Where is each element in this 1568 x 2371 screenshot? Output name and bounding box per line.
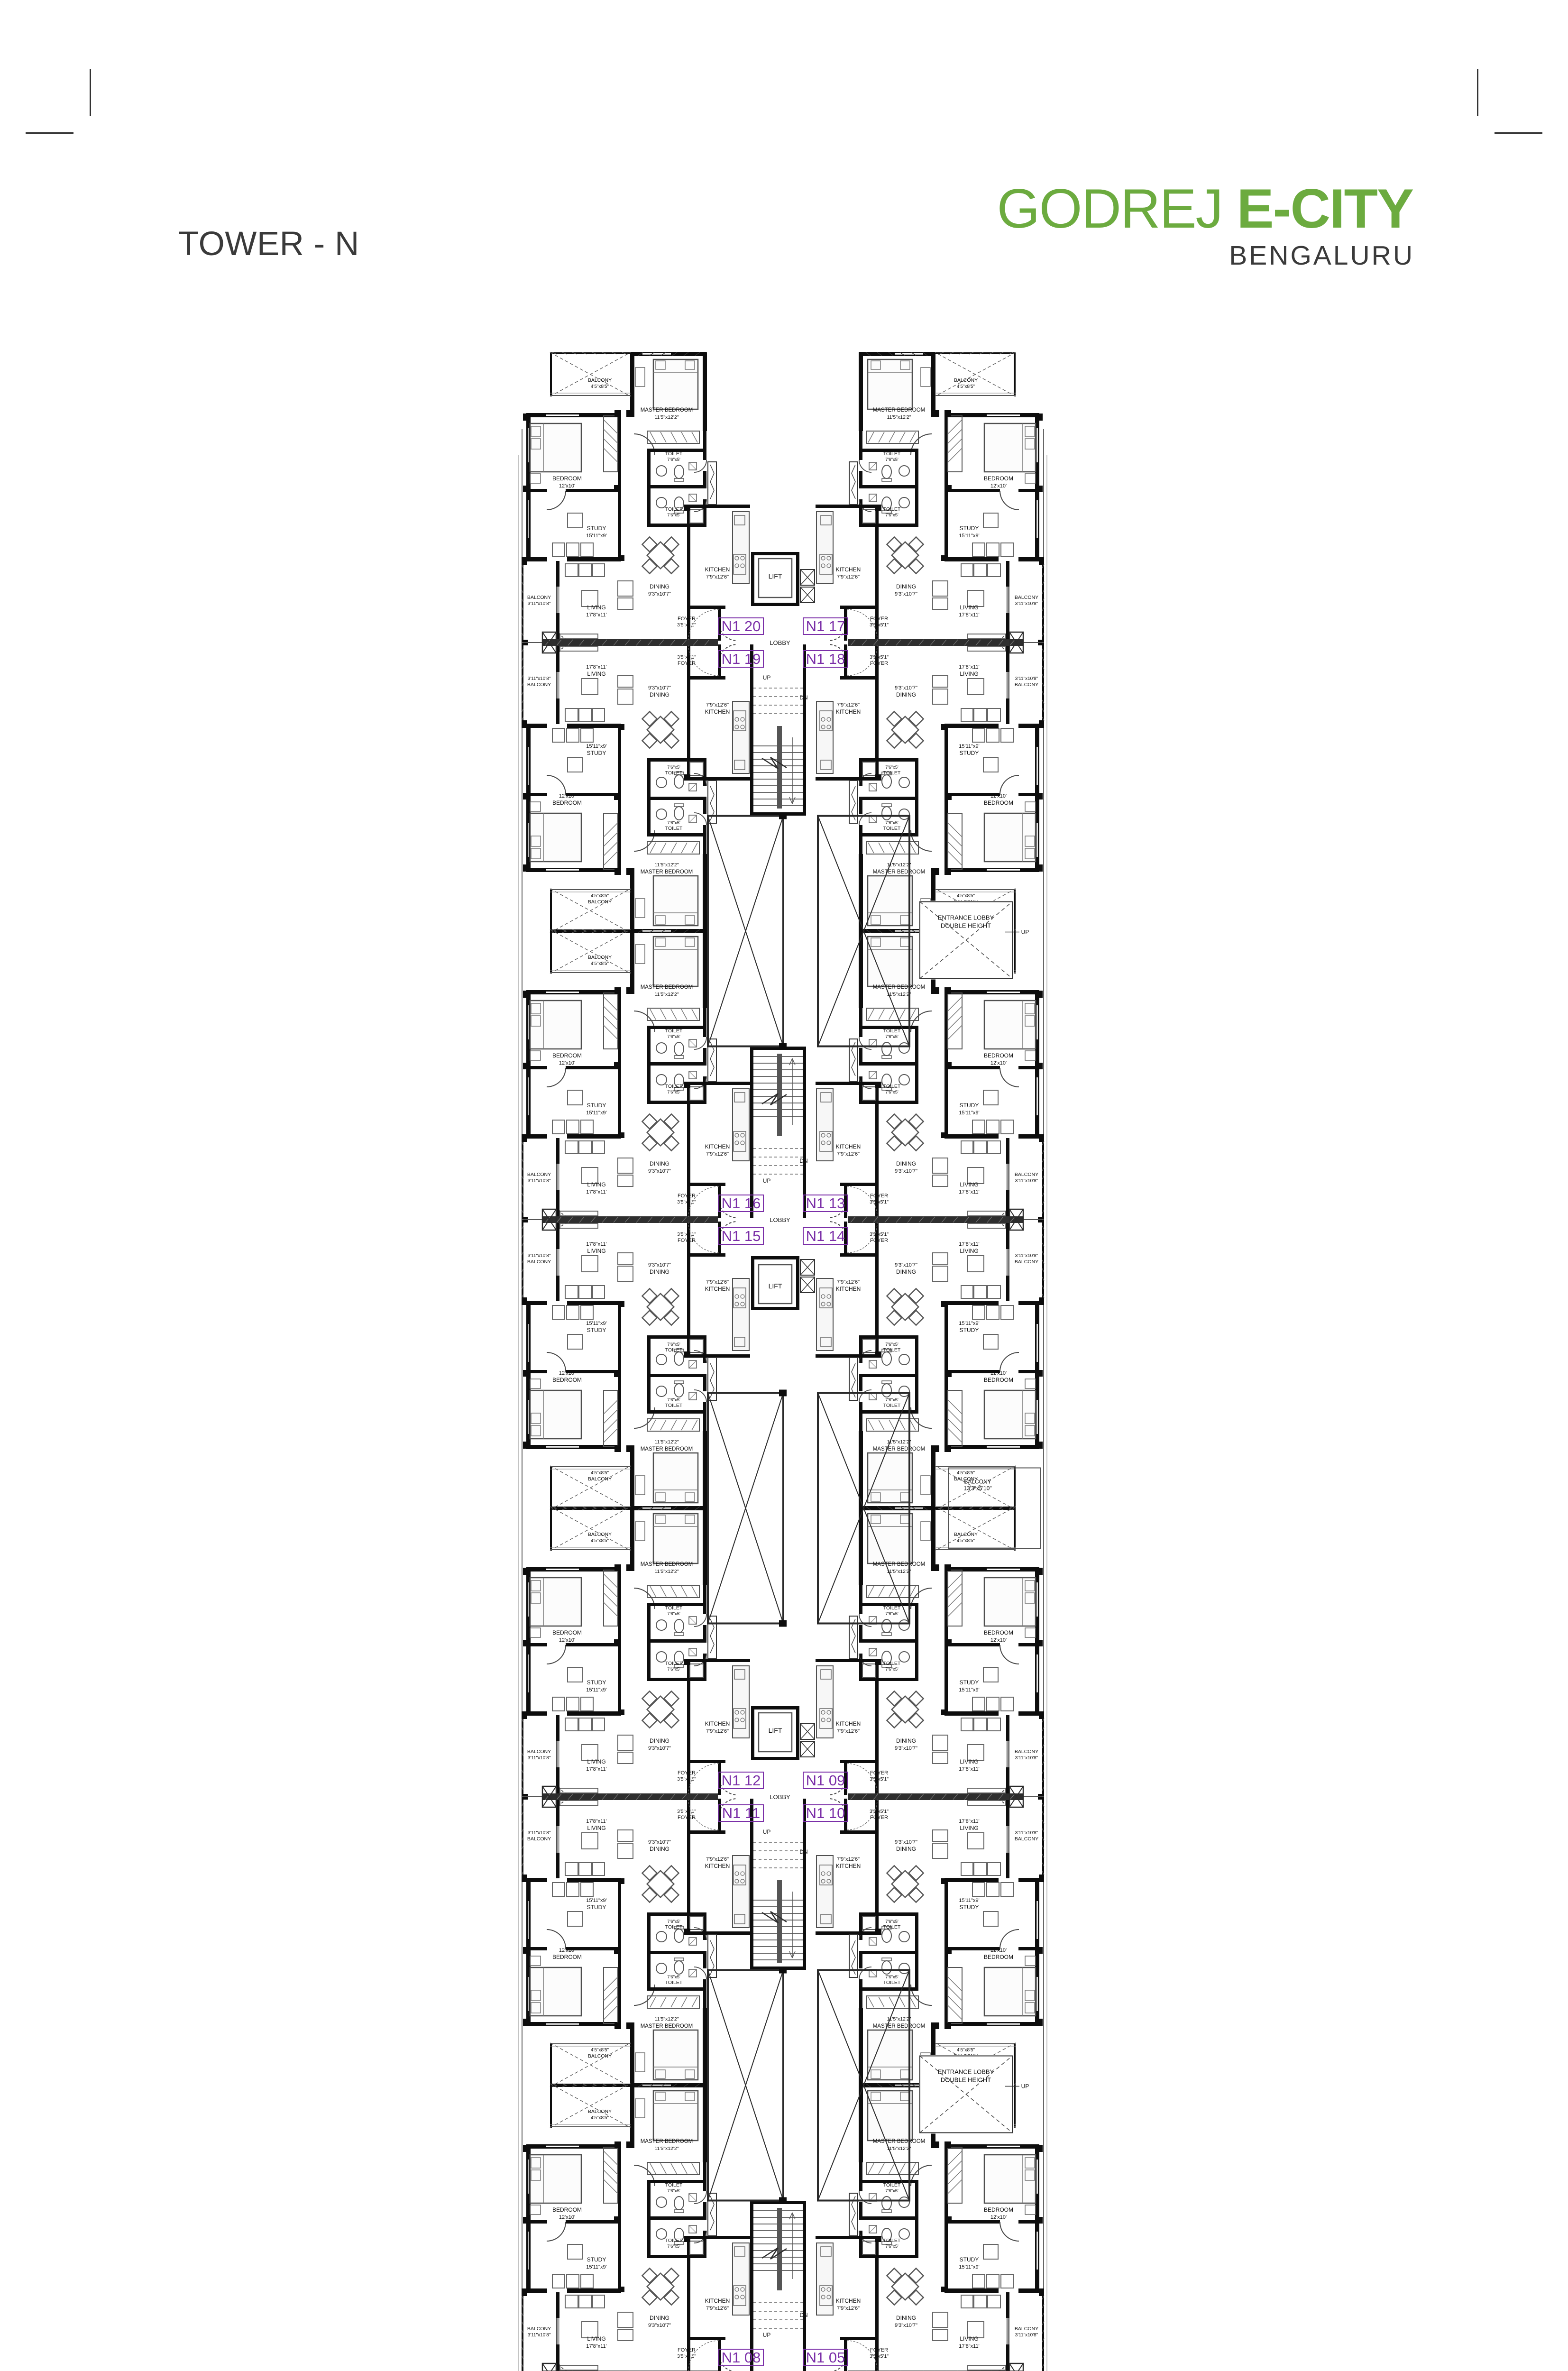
svg-text:KITCHEN: KITCHEN — [836, 1143, 861, 1150]
svg-text:11'5"x12'2": 11'5"x12'2" — [655, 1439, 679, 1445]
svg-text:N1 15: N1 15 — [722, 1228, 761, 1244]
svg-text:KITCHEN: KITCHEN — [705, 1863, 730, 1869]
svg-text:TOILET: TOILET — [883, 1605, 901, 1611]
svg-text:15'11"x9': 15'11"x9' — [586, 533, 606, 539]
svg-text:11'5"x12'2": 11'5"x12'2" — [655, 414, 679, 420]
svg-text:STUDY: STUDY — [587, 1904, 606, 1911]
svg-text:N1 08: N1 08 — [722, 2349, 761, 2366]
svg-text:LIVING: LIVING — [587, 2335, 605, 2342]
svg-text:12'x10': 12'x10' — [559, 1370, 575, 1376]
svg-text:LIVING: LIVING — [587, 1758, 605, 1765]
svg-text:TOILET: TOILET — [665, 1028, 683, 1034]
svg-text:DINING: DINING — [896, 1737, 916, 1744]
svg-text:12'x10': 12'x10' — [990, 483, 1007, 489]
svg-text:TOILET: TOILET — [883, 826, 901, 831]
svg-text:3'11"x10'8": 3'11"x10'8" — [528, 676, 551, 681]
svg-text:15'11"x9': 15'11"x9' — [586, 2264, 606, 2270]
svg-text:15'11"x9': 15'11"x9' — [959, 1687, 979, 1693]
svg-text:MASTER BEDROOM: MASTER BEDROOM — [873, 407, 926, 413]
svg-text:7'6"x5': 7'6"x5' — [885, 1975, 899, 1980]
svg-text:TOILET: TOILET — [883, 451, 901, 457]
svg-text:BEDROOM: BEDROOM — [552, 475, 582, 482]
svg-text:7'9"x12'6": 7'9"x12'6" — [706, 1728, 729, 1734]
svg-text:BEDROOM: BEDROOM — [552, 1052, 582, 1059]
svg-text:9'3"x10'7": 9'3"x10'7" — [895, 2323, 917, 2328]
svg-text:BEDROOM: BEDROOM — [552, 2206, 582, 2213]
svg-text:LOBBY: LOBBY — [770, 1793, 790, 1801]
svg-text:N1 14: N1 14 — [806, 1228, 845, 1244]
svg-text:N1 16: N1 16 — [722, 1195, 761, 1212]
svg-text:7'6"x5': 7'6"x5' — [885, 765, 899, 770]
svg-text:FOYER: FOYER — [870, 2347, 888, 2353]
svg-text:4'5"x8'5": 4'5"x8'5" — [591, 961, 609, 966]
svg-text:15'11"x9': 15'11"x9' — [959, 533, 979, 539]
svg-text:3'11"x10'8": 3'11"x10'8" — [528, 1253, 551, 1259]
svg-text:BALCONY: BALCONY — [954, 1532, 978, 1537]
svg-text:7'9"x12'6": 7'9"x12'6" — [837, 1728, 860, 1734]
svg-text:BALCONY: BALCONY — [527, 1836, 551, 1842]
svg-text:3'11"x10'8": 3'11"x10'8" — [1015, 1253, 1038, 1259]
svg-text:BEDROOM: BEDROOM — [552, 1954, 582, 1960]
svg-text:15'11"x9': 15'11"x9' — [586, 744, 606, 749]
svg-text:LOBBY: LOBBY — [770, 639, 790, 646]
svg-text:DINING: DINING — [896, 1160, 916, 1167]
svg-text:BENGALURU: BENGALURU — [1229, 240, 1414, 271]
svg-text:TOILET: TOILET — [665, 1403, 683, 1408]
svg-text:BALCONY: BALCONY — [964, 1479, 991, 1485]
svg-text:3'5"x5'1": 3'5"x5'1" — [677, 1231, 696, 1237]
svg-text:15'11"x9': 15'11"x9' — [959, 1321, 979, 1326]
svg-text:TOILET: TOILET — [665, 2182, 683, 2188]
svg-text:DINING: DINING — [650, 1846, 669, 1852]
svg-text:KITCHEN: KITCHEN — [836, 566, 861, 573]
svg-text:KITCHEN: KITCHEN — [836, 1863, 861, 1869]
svg-text:7'6"x5': 7'6"x5' — [885, 1034, 899, 1039]
svg-text:TOILET: TOILET — [883, 2238, 901, 2243]
svg-text:BEDROOM: BEDROOM — [984, 1629, 1013, 1636]
svg-text:7'6"x5': 7'6"x5' — [885, 1919, 899, 1924]
svg-text:BALCONY: BALCONY — [527, 1259, 551, 1265]
svg-text:15'11"x9': 15'11"x9' — [959, 744, 979, 749]
svg-text:TOILET: TOILET — [665, 826, 683, 831]
svg-text:BALCONY: BALCONY — [527, 682, 551, 688]
svg-text:17'8"x11': 17'8"x11' — [586, 1189, 606, 1195]
svg-text:9'3"x10'7": 9'3"x10'7" — [895, 1839, 917, 1845]
svg-text:7'9"x12'6": 7'9"x12'6" — [837, 702, 860, 708]
svg-text:BALCONY: BALCONY — [527, 1172, 551, 1177]
svg-text:LIVING: LIVING — [960, 1181, 978, 1188]
svg-text:LIFT: LIFT — [769, 1727, 782, 1734]
svg-text:7'6"x5': 7'6"x5' — [885, 1667, 899, 1672]
svg-text:TOILET: TOILET — [665, 1924, 683, 1930]
svg-text:BALCONY: BALCONY — [588, 899, 612, 905]
svg-text:TOILET: TOILET — [665, 1084, 683, 1089]
svg-text:17'8"x11': 17'8"x11' — [959, 1241, 979, 1247]
svg-text:3'5"x5'1": 3'5"x5'1" — [677, 1809, 696, 1814]
svg-text:LIVING: LIVING — [960, 604, 978, 611]
svg-text:BEDROOM: BEDROOM — [984, 1954, 1013, 1960]
svg-text:9'3"x10'7": 9'3"x10'7" — [648, 1839, 671, 1845]
svg-text:7'9"x12'6": 7'9"x12'6" — [706, 1279, 729, 1285]
svg-text:BALCONY: BALCONY — [1015, 2326, 1038, 2332]
svg-text:DINING: DINING — [896, 1268, 916, 1275]
svg-text:TOILET: TOILET — [665, 1980, 683, 1985]
svg-text:BALCONY: BALCONY — [954, 377, 978, 383]
svg-text:BEDROOM: BEDROOM — [984, 1377, 1013, 1383]
svg-text:DOUBLE HEIGHT: DOUBLE HEIGHT — [941, 2077, 991, 2084]
svg-text:4'5"x8'5": 4'5"x8'5" — [591, 384, 609, 389]
svg-text:STUDY: STUDY — [960, 2256, 979, 2263]
svg-text:LIVING: LIVING — [587, 604, 605, 611]
svg-text:TOILET: TOILET — [665, 1347, 683, 1353]
svg-text:11'5"x12'2": 11'5"x12'2" — [887, 414, 911, 420]
svg-text:KITCHEN: KITCHEN — [705, 1720, 730, 1727]
svg-text:7'9"x12'6": 7'9"x12'6" — [837, 2306, 860, 2311]
svg-text:UP: UP — [763, 1177, 771, 1184]
svg-text:KITCHEN: KITCHEN — [705, 1143, 730, 1150]
svg-text:STUDY: STUDY — [587, 1679, 606, 1686]
svg-text:STUDY: STUDY — [587, 750, 606, 756]
svg-text:KITCHEN: KITCHEN — [836, 2297, 861, 2304]
svg-text:DINING: DINING — [650, 583, 669, 590]
svg-text:7'6"x5': 7'6"x5' — [667, 1611, 680, 1617]
svg-text:TOILET: TOILET — [883, 2182, 901, 2188]
svg-text:DINING: DINING — [896, 691, 916, 698]
svg-text:LIVING: LIVING — [960, 1825, 978, 1831]
svg-text:3'11"x10'8": 3'11"x10'8" — [528, 1178, 551, 1184]
svg-text:BEDROOM: BEDROOM — [984, 475, 1013, 482]
svg-text:MASTER BEDROOM: MASTER BEDROOM — [641, 2139, 693, 2144]
svg-text:12'x10': 12'x10' — [990, 1637, 1007, 1643]
svg-text:12'x10': 12'x10' — [559, 483, 575, 489]
svg-text:STUDY: STUDY — [587, 1102, 606, 1109]
svg-text:7'9"x12'6": 7'9"x12'6" — [837, 1279, 860, 1285]
svg-text:BALCONY: BALCONY — [588, 955, 612, 960]
svg-text:7'6"x5': 7'6"x5' — [667, 513, 680, 518]
svg-text:11'5"x12'2": 11'5"x12'2" — [655, 2016, 679, 2022]
svg-text:BALCONY: BALCONY — [527, 2326, 551, 2332]
svg-text:7'6"x5': 7'6"x5' — [667, 1397, 680, 1403]
svg-text:KITCHEN: KITCHEN — [836, 1286, 861, 1292]
svg-text:TOILET: TOILET — [665, 1605, 683, 1611]
svg-text:BALCONY: BALCONY — [1015, 1172, 1038, 1177]
svg-text:BALCONY: BALCONY — [1015, 595, 1038, 600]
svg-text:15'11"x9': 15'11"x9' — [586, 1110, 606, 1116]
svg-text:7'6"x5': 7'6"x5' — [885, 1397, 899, 1403]
svg-text:12'x10': 12'x10' — [990, 2215, 1007, 2220]
svg-text:STUDY: STUDY — [587, 1327, 606, 1333]
svg-text:LIFT: LIFT — [769, 1282, 782, 1290]
svg-text:DINING: DINING — [650, 1160, 669, 1167]
svg-text:FOYER: FOYER — [678, 1193, 696, 1199]
svg-text:FOYER: FOYER — [678, 1770, 696, 1776]
svg-text:BALCONY: BALCONY — [527, 595, 551, 600]
svg-text:BEDROOM: BEDROOM — [552, 800, 582, 806]
svg-text:11'5"x12'2": 11'5"x12'2" — [887, 1569, 911, 1574]
svg-text:BALCONY: BALCONY — [588, 377, 612, 383]
svg-text:BALCONY: BALCONY — [588, 1532, 612, 1537]
svg-text:7'6"x5': 7'6"x5' — [667, 1667, 680, 1672]
svg-text:UP: UP — [763, 1829, 771, 1835]
svg-text:3'11"x10'8": 3'11"x10'8" — [1015, 1755, 1038, 1761]
svg-text:STUDY: STUDY — [960, 1904, 979, 1911]
svg-text:12'x10': 12'x10' — [990, 793, 1007, 799]
svg-text:LIVING: LIVING — [960, 2335, 978, 2342]
svg-text:UP: UP — [763, 674, 771, 681]
svg-text:N1 19: N1 19 — [722, 651, 761, 667]
svg-text:UP: UP — [1021, 929, 1029, 936]
svg-text:3'5"x5'1": 3'5"x5'1" — [870, 654, 889, 660]
svg-text:7'6"x5': 7'6"x5' — [667, 1342, 680, 1347]
svg-text:KITCHEN: KITCHEN — [705, 708, 730, 715]
svg-text:MASTER BEDROOM: MASTER BEDROOM — [873, 984, 926, 990]
svg-text:7'9"x12'6": 7'9"x12'6" — [706, 1856, 729, 1862]
svg-text:TOILET: TOILET — [883, 1661, 901, 1666]
svg-text:17'8"x11': 17'8"x11' — [586, 2343, 606, 2349]
svg-text:MASTER BEDROOM: MASTER BEDROOM — [641, 1562, 693, 1567]
svg-text:7'9"x12'6": 7'9"x12'6" — [837, 1856, 860, 1862]
svg-text:9'3"x10'7": 9'3"x10'7" — [895, 1168, 917, 1174]
svg-text:STUDY: STUDY — [960, 1327, 979, 1333]
svg-text:FOYER: FOYER — [870, 1193, 888, 1199]
svg-text:7'6"x5': 7'6"x5' — [667, 1034, 680, 1039]
svg-text:9'3"x10'7": 9'3"x10'7" — [895, 1746, 917, 1751]
svg-text:3'5"x5'1": 3'5"x5'1" — [870, 1809, 889, 1814]
svg-text:BEDROOM: BEDROOM — [552, 1377, 582, 1383]
svg-text:9'3"x10'7": 9'3"x10'7" — [895, 591, 917, 597]
svg-text:4'5"x8'5": 4'5"x8'5" — [591, 2048, 609, 2053]
svg-text:12'x10': 12'x10' — [559, 1060, 575, 1066]
svg-text:12'x10': 12'x10' — [990, 1370, 1007, 1376]
svg-text:17'8"x11': 17'8"x11' — [959, 1189, 979, 1195]
svg-text:TOWER - N: TOWER - N — [178, 225, 359, 263]
svg-text:STUDY: STUDY — [960, 1102, 979, 1109]
svg-text:MASTER BEDROOM: MASTER BEDROOM — [873, 2023, 926, 2029]
svg-text:BALCONY: BALCONY — [527, 1749, 551, 1755]
svg-text:MASTER BEDROOM: MASTER BEDROOM — [873, 2139, 926, 2144]
svg-text:DOUBLE HEIGHT: DOUBLE HEIGHT — [941, 922, 991, 929]
svg-text:13'3"x5'10": 13'3"x5'10" — [963, 1485, 991, 1492]
svg-text:3'11"x10'8": 3'11"x10'8" — [1015, 676, 1038, 681]
svg-text:DINING: DINING — [650, 1268, 669, 1275]
svg-text:17'8"x11': 17'8"x11' — [959, 1819, 979, 1824]
svg-text:MASTER BEDROOM: MASTER BEDROOM — [641, 1446, 693, 1452]
svg-text:LIVING: LIVING — [587, 1181, 605, 1188]
svg-text:LIVING: LIVING — [587, 671, 605, 677]
svg-text:TOILET: TOILET — [883, 1347, 901, 1353]
svg-text:7'6"x5': 7'6"x5' — [667, 2244, 680, 2249]
svg-text:KITCHEN: KITCHEN — [836, 708, 861, 715]
svg-text:7'6"x5': 7'6"x5' — [885, 1611, 899, 1617]
svg-text:3'11"x10'8": 3'11"x10'8" — [1015, 1830, 1038, 1836]
svg-text:7'6"x5': 7'6"x5' — [885, 820, 899, 826]
svg-text:BEDROOM: BEDROOM — [984, 1052, 1013, 1059]
svg-text:4'5"x8'5": 4'5"x8'5" — [591, 1538, 609, 1544]
svg-text:4'5"x8'5": 4'5"x8'5" — [957, 1538, 975, 1544]
svg-text:DN: DN — [799, 694, 807, 701]
svg-text:17'8"x11': 17'8"x11' — [959, 1766, 979, 1772]
svg-text:DINING: DINING — [896, 583, 916, 590]
svg-text:15'11"x9': 15'11"x9' — [586, 1321, 606, 1326]
svg-text:TOILET: TOILET — [883, 1403, 901, 1408]
svg-text:MASTER BEDROOM: MASTER BEDROOM — [641, 407, 693, 413]
svg-text:LIVING: LIVING — [960, 671, 978, 677]
svg-text:BALCONY: BALCONY — [1015, 682, 1038, 688]
svg-text:MASTER BEDROOM: MASTER BEDROOM — [641, 984, 693, 990]
svg-text:KITCHEN: KITCHEN — [705, 566, 730, 573]
svg-text:TOILET: TOILET — [883, 770, 901, 776]
svg-text:KITCHEN: KITCHEN — [705, 1286, 730, 1292]
svg-text:LIVING: LIVING — [587, 1825, 605, 1831]
svg-text:9'3"x10'7": 9'3"x10'7" — [648, 1262, 671, 1268]
svg-text:7'6"x5': 7'6"x5' — [885, 513, 899, 518]
svg-text:BEDROOM: BEDROOM — [984, 2206, 1013, 2213]
svg-text:7'6"x5': 7'6"x5' — [667, 1090, 680, 1095]
svg-text:LIFT: LIFT — [769, 572, 782, 580]
svg-text:MASTER BEDROOM: MASTER BEDROOM — [873, 1562, 926, 1567]
svg-text:17'8"x11': 17'8"x11' — [959, 612, 979, 618]
svg-text:STUDY: STUDY — [960, 1679, 979, 1686]
svg-text:9'3"x10'7": 9'3"x10'7" — [648, 591, 671, 597]
svg-text:12'x10': 12'x10' — [559, 2215, 575, 2220]
svg-text:9'3"x10'7": 9'3"x10'7" — [895, 1262, 917, 1268]
svg-text:3'5"x5'1": 3'5"x5'1" — [677, 654, 696, 660]
svg-text:TOILET: TOILET — [883, 506, 901, 512]
svg-text:UP: UP — [763, 2332, 771, 2338]
svg-text:DINING: DINING — [896, 1846, 916, 1852]
svg-text:TOILET: TOILET — [665, 451, 683, 457]
svg-text:STUDY: STUDY — [587, 2256, 606, 2263]
svg-text:4'5"x8'5": 4'5"x8'5" — [957, 1470, 975, 1476]
svg-text:BALCONY: BALCONY — [588, 2053, 612, 2059]
svg-text:4'5"x8'5": 4'5"x8'5" — [591, 893, 609, 899]
svg-text:7'9"x12'6": 7'9"x12'6" — [706, 702, 729, 708]
svg-text:3'11"x10'8": 3'11"x10'8" — [528, 1830, 551, 1836]
svg-text:7'9"x12'6": 7'9"x12'6" — [837, 1151, 860, 1157]
svg-text:7'6"x5': 7'6"x5' — [667, 2188, 680, 2194]
svg-text:4'5"x8'5": 4'5"x8'5" — [591, 2115, 609, 2121]
svg-text:BALCONY: BALCONY — [1015, 1749, 1038, 1755]
svg-text:LIVING: LIVING — [587, 1248, 605, 1254]
svg-text:N1 20: N1 20 — [722, 618, 761, 634]
svg-text:3'11"x10'8": 3'11"x10'8" — [1015, 601, 1038, 607]
svg-text:3'11"x10'8": 3'11"x10'8" — [1015, 2333, 1038, 2338]
svg-text:DINING: DINING — [650, 2315, 669, 2321]
svg-text:7'6"x5': 7'6"x5' — [667, 765, 680, 770]
svg-text:4'5"x8'5": 4'5"x8'5" — [957, 384, 975, 389]
svg-text:7'6"x5': 7'6"x5' — [667, 1919, 680, 1924]
svg-text:TOILET: TOILET — [665, 2238, 683, 2243]
svg-text:DN: DN — [799, 2312, 807, 2318]
svg-text:FOYER: FOYER — [870, 616, 888, 622]
svg-text:7'6"x5': 7'6"x5' — [885, 2188, 899, 2194]
svg-text:12'x10': 12'x10' — [559, 1637, 575, 1643]
svg-text:MASTER BEDROOM: MASTER BEDROOM — [641, 869, 693, 875]
svg-text:KITCHEN: KITCHEN — [836, 1720, 861, 1727]
svg-text:3'5"x5'1": 3'5"x5'1" — [870, 1231, 889, 1237]
svg-text:LOBBY: LOBBY — [770, 1216, 790, 1223]
svg-text:TOILET: TOILET — [665, 770, 683, 776]
svg-text:N1 10: N1 10 — [806, 1805, 845, 1821]
svg-text:N1 17: N1 17 — [806, 618, 845, 634]
svg-text:DN: DN — [799, 1848, 807, 1855]
svg-text:15'11"x9': 15'11"x9' — [586, 1687, 606, 1693]
svg-text:MASTER BEDROOM: MASTER BEDROOM — [641, 2023, 693, 2029]
svg-text:7'9"x12'6": 7'9"x12'6" — [706, 1151, 729, 1157]
svg-text:12'x10': 12'x10' — [559, 793, 575, 799]
svg-text:7'9"x12'6": 7'9"x12'6" — [837, 574, 860, 580]
svg-text:3'11"x10'8": 3'11"x10'8" — [1015, 1178, 1038, 1184]
svg-text:17'8"x11': 17'8"x11' — [586, 1241, 606, 1247]
svg-text:15'11"x9': 15'11"x9' — [959, 2264, 979, 2270]
svg-text:3'11"x10'8": 3'11"x10'8" — [528, 2333, 551, 2338]
svg-text:N1 11: N1 11 — [722, 1805, 760, 1821]
svg-text:15'11"x9': 15'11"x9' — [586, 1898, 606, 1903]
svg-text:BALCONY: BALCONY — [1015, 1836, 1038, 1842]
svg-text:9'3"x10'7": 9'3"x10'7" — [648, 1168, 671, 1174]
svg-text:GODREJ E-CITY: GODREJ E-CITY — [997, 177, 1413, 239]
svg-text:7'9"x12'6": 7'9"x12'6" — [706, 2306, 729, 2311]
svg-text:STUDY: STUDY — [587, 525, 606, 532]
svg-text:LIVING: LIVING — [960, 1758, 978, 1765]
svg-text:DINING: DINING — [650, 691, 669, 698]
svg-text:FOYER: FOYER — [870, 1770, 888, 1776]
svg-text:KITCHEN: KITCHEN — [705, 2297, 730, 2304]
svg-text:12'x10': 12'x10' — [559, 1948, 575, 1953]
svg-text:TOILET: TOILET — [883, 1980, 901, 1985]
svg-text:TOILET: TOILET — [665, 1661, 683, 1666]
svg-text:11'5"x12'2": 11'5"x12'2" — [887, 2146, 911, 2151]
svg-text:7'9"x12'6": 7'9"x12'6" — [706, 574, 729, 580]
svg-text:11'5"x12'2": 11'5"x12'2" — [655, 2146, 679, 2151]
svg-text:DINING: DINING — [896, 2315, 916, 2321]
svg-text:STUDY: STUDY — [960, 750, 979, 756]
svg-text:9'3"x10'7": 9'3"x10'7" — [648, 1746, 671, 1751]
svg-text:11'5"x12'2": 11'5"x12'2" — [655, 992, 679, 997]
svg-text:11'5"x12'2": 11'5"x12'2" — [655, 862, 679, 868]
svg-text:N1 18: N1 18 — [806, 651, 845, 667]
svg-text:UP: UP — [1021, 2083, 1029, 2090]
svg-text:BALCONY: BALCONY — [588, 1476, 612, 1482]
svg-text:11'5"x12'2": 11'5"x12'2" — [655, 1569, 679, 1574]
svg-text:STUDY: STUDY — [960, 525, 979, 532]
svg-text:7'6"x5': 7'6"x5' — [885, 457, 899, 462]
svg-text:3'11"x10'8": 3'11"x10'8" — [528, 601, 551, 607]
svg-text:17'8"x11': 17'8"x11' — [586, 664, 606, 670]
svg-text:MASTER BEDROOM: MASTER BEDROOM — [873, 1446, 926, 1452]
svg-text:ENTRANCE LOBBY: ENTRANCE LOBBY — [938, 914, 994, 921]
svg-text:BALCONY: BALCONY — [588, 2109, 612, 2114]
svg-text:BEDROOM: BEDROOM — [984, 800, 1013, 806]
svg-text:FOYER: FOYER — [678, 2347, 696, 2353]
svg-text:17'8"x11': 17'8"x11' — [586, 1819, 606, 1824]
svg-text:4'5"x8'5": 4'5"x8'5" — [957, 2048, 975, 2053]
svg-text:7'6"x5': 7'6"x5' — [667, 1975, 680, 1980]
svg-text:12'x10': 12'x10' — [990, 1948, 1007, 1953]
svg-text:TOILET: TOILET — [883, 1924, 901, 1930]
svg-text:4'5"x8'5": 4'5"x8'5" — [957, 893, 975, 899]
svg-text:9'3"x10'7": 9'3"x10'7" — [648, 685, 671, 691]
svg-text:4'5"x8'5": 4'5"x8'5" — [591, 1470, 609, 1476]
svg-text:7'6"x5': 7'6"x5' — [667, 457, 680, 462]
svg-text:17'8"x11': 17'8"x11' — [959, 664, 979, 670]
svg-text:N1 12: N1 12 — [722, 1772, 761, 1789]
svg-text:ENTRANCE LOBBY: ENTRANCE LOBBY — [938, 2068, 994, 2076]
svg-text:9'3"x10'7": 9'3"x10'7" — [648, 2323, 671, 2328]
svg-text:15'11"x9': 15'11"x9' — [959, 1898, 979, 1903]
svg-text:7'6"x5': 7'6"x5' — [885, 1090, 899, 1095]
svg-text:17'8"x11': 17'8"x11' — [586, 1766, 606, 1772]
